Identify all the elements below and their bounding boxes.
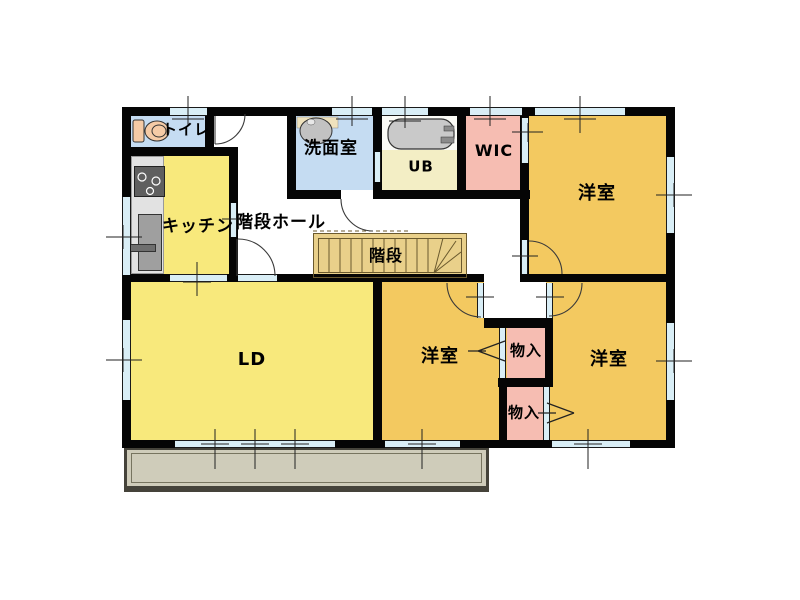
wall-ld-bedroom-divider xyxy=(373,282,382,440)
wall-washroom-ub-wic-bottom xyxy=(287,190,530,199)
window-right-bedroom-bottom xyxy=(666,323,675,400)
stove-icon xyxy=(134,166,165,197)
label-living-dining: LD xyxy=(238,351,266,369)
door-storage-upper xyxy=(499,328,506,378)
wall-storage-upper-top xyxy=(484,318,553,328)
window-top-hall xyxy=(170,107,207,116)
door-storage-lower xyxy=(543,387,550,440)
window-top-wic xyxy=(470,107,522,116)
floor-plan: トイレ キッチン 階段ホール 洗面室 UB WIC 洋室 階段 LD 洋室 物入… xyxy=(0,0,800,600)
door-ld-opening xyxy=(238,274,277,282)
wall-storage-upper-right xyxy=(545,328,553,378)
window-bottom-ld xyxy=(175,440,335,448)
room-unit-bath-top xyxy=(382,116,458,152)
window-left-kitchen xyxy=(122,197,131,275)
window-bottom-bedroom-right xyxy=(552,440,630,448)
vestibule-hall xyxy=(484,282,546,318)
label-washroom: 洗面室 xyxy=(304,141,358,158)
door-bedroom-middle xyxy=(477,283,484,318)
label-storage-upper: 物入 xyxy=(510,344,542,359)
balcony xyxy=(124,448,489,492)
wall-toilet-bottom xyxy=(122,147,238,156)
balcony-inner-line xyxy=(131,453,482,483)
label-unit-bath: UB xyxy=(408,160,434,175)
label-stair-hall: 階段ホール xyxy=(236,215,326,232)
label-stairs: 階段 xyxy=(369,248,403,264)
door-bedroom-right xyxy=(546,283,553,318)
door-ub xyxy=(374,152,381,182)
window-bottom-bedroom-middle xyxy=(385,440,460,448)
label-toilet: トイレ xyxy=(162,123,210,138)
wall-ub-wic-divider xyxy=(457,116,466,199)
window-right-bedroom-top xyxy=(666,157,675,233)
wall-mid-horizontal-east xyxy=(520,274,675,282)
door-wic xyxy=(521,118,529,163)
window-top-bedroom xyxy=(535,107,625,116)
window-top-washroom xyxy=(332,107,372,116)
window-top-unit-bath xyxy=(382,107,428,116)
kitchen-sink-icon xyxy=(138,214,162,271)
door-washroom-opening xyxy=(341,190,373,199)
door-kitchen-ld-slider xyxy=(170,274,227,282)
wall-storage-between xyxy=(498,378,553,387)
kitchen-faucet-icon xyxy=(130,244,156,252)
label-kitchen: キッチン xyxy=(162,219,234,236)
label-storage-lower: 物入 xyxy=(508,406,540,421)
label-bedroom-top-right: 洋室 xyxy=(578,185,616,203)
window-left-ld xyxy=(122,320,131,400)
label-wic: WIC xyxy=(475,143,513,159)
wall-washroom-left xyxy=(287,116,296,199)
label-bedroom-bottom-right: 洋室 xyxy=(590,351,628,369)
door-bedroom-top-right xyxy=(521,240,528,274)
wall-storage-lower-left xyxy=(499,387,507,440)
label-bedroom-bottom-middle: 洋室 xyxy=(421,348,459,366)
